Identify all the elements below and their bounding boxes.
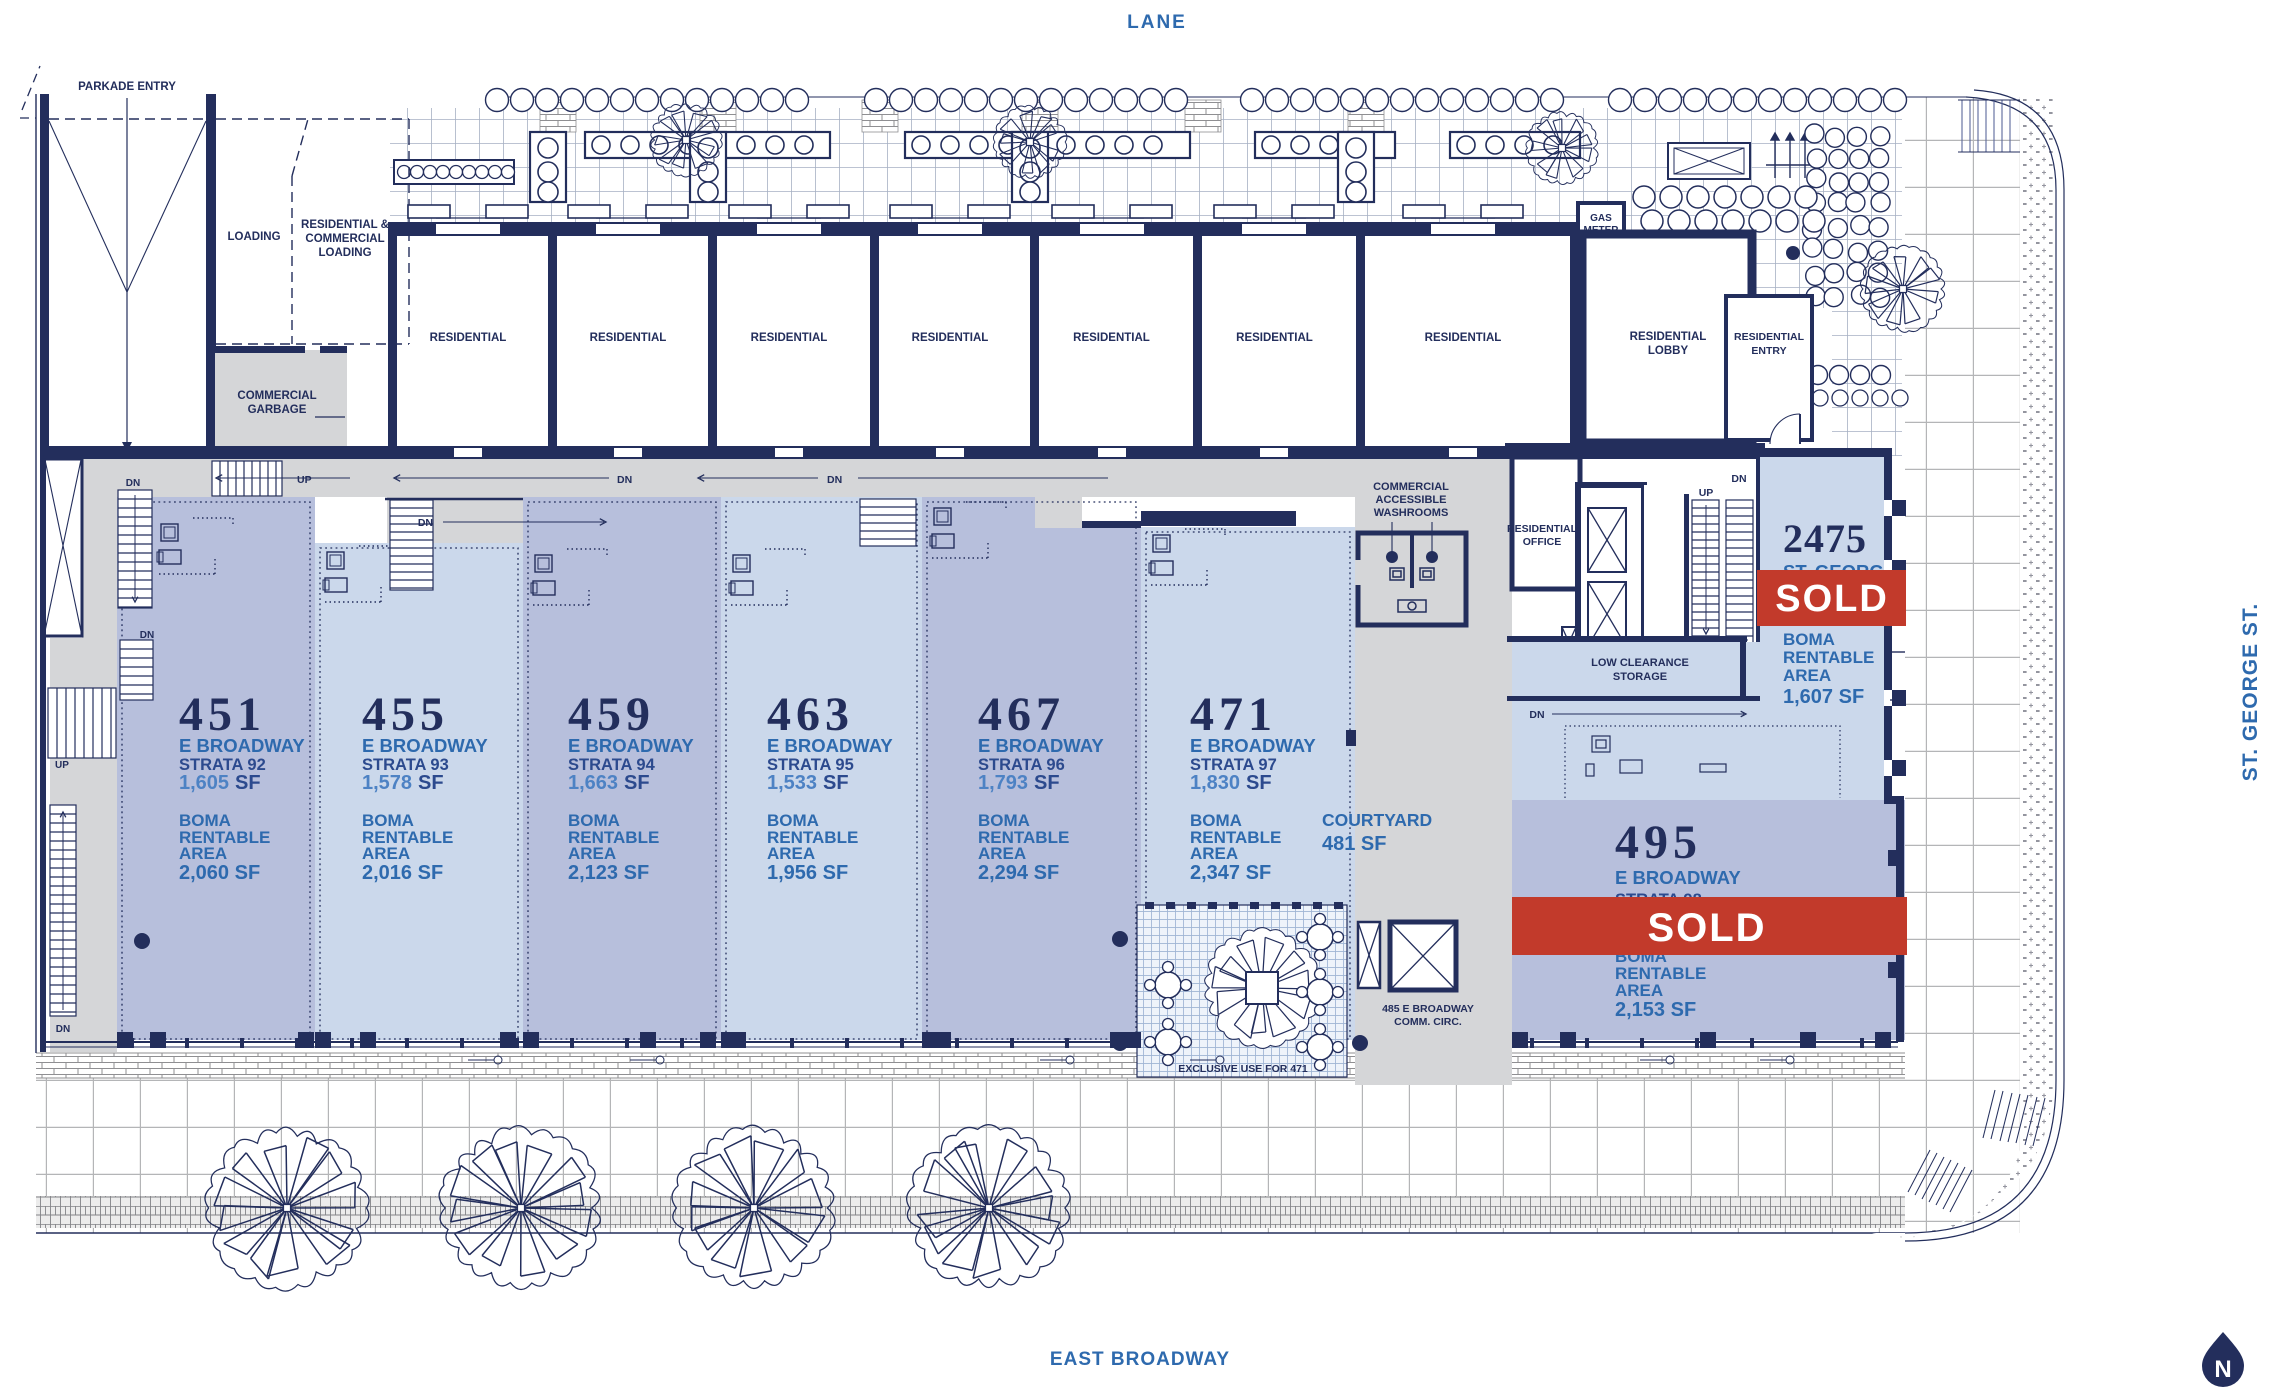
svg-text:LANE: LANE [1127,12,1187,33]
svg-text:DN: DN [56,1024,70,1035]
svg-text:2,153 SF: 2,153 SF [1615,999,1696,1021]
svg-text:E BROADWAY: E BROADWAY [568,735,694,756]
svg-text:OFFICE: OFFICE [1523,536,1562,548]
svg-text:RESIDENTIAL: RESIDENTIAL [1734,331,1805,343]
svg-text:UP: UP [297,474,312,486]
svg-text:E BROADWAY: E BROADWAY [1190,735,1316,756]
svg-text:451: 451 [179,688,266,741]
svg-text:ST. GEORGE ST.: ST. GEORGE ST. [2239,603,2262,782]
svg-text:2475: 2475 [1783,516,1867,561]
svg-text:UP: UP [1699,487,1714,499]
svg-text:ACCESSIBLE: ACCESSIBLE [1376,494,1447,506]
svg-text:1,605: 1,605 [179,772,229,794]
svg-text:RESIDENTIAL: RESIDENTIAL [430,332,507,344]
svg-text:PARKADE ENTRY: PARKADE ENTRY [78,81,176,93]
svg-text:COMMERCIAL: COMMERCIAL [237,390,316,402]
svg-text:GARBAGE: GARBAGE [248,404,307,416]
svg-text:RESIDENTIAL: RESIDENTIAL [1507,523,1578,535]
svg-text:2,016 SF: 2,016 SF [362,862,443,884]
svg-text:AREA: AREA [362,844,410,863]
svg-text:E BROADWAY: E BROADWAY [362,735,488,756]
svg-text:SF: SF [624,772,650,794]
svg-text:GAS: GAS [1590,213,1612,224]
svg-text:BOMA: BOMA [1783,630,1835,649]
svg-text:N: N [2214,1356,2231,1383]
svg-text:COMMERCIAL: COMMERCIAL [1373,481,1449,493]
svg-text:E BROADWAY: E BROADWAY [978,735,1104,756]
svg-text:E BROADWAY: E BROADWAY [179,735,305,756]
svg-text:SF: SF [418,772,444,794]
svg-text:COMMERCIAL: COMMERCIAL [305,233,384,245]
svg-text:DN: DN [418,517,433,529]
svg-text:LOADING: LOADING [227,231,280,243]
svg-text:459: 459 [568,688,655,741]
svg-text:463: 463 [767,688,854,741]
svg-text:EAST BROADWAY: EAST BROADWAY [1050,1349,1230,1370]
svg-text:485 E BROADWAY: 485 E BROADWAY [1382,1003,1474,1015]
svg-text:LOW CLEARANCE: LOW CLEARANCE [1591,657,1689,669]
svg-text:RESIDENTIAL: RESIDENTIAL [1236,332,1313,344]
svg-text:2,123 SF: 2,123 SF [568,862,649,884]
svg-text:DN: DN [1529,709,1544,721]
svg-text:SF: SF [235,772,261,794]
svg-text:E BROADWAY: E BROADWAY [767,735,893,756]
svg-text:UP: UP [55,760,69,771]
svg-text:1,793: 1,793 [978,772,1028,794]
svg-text:RESIDENTIAL: RESIDENTIAL [912,332,989,344]
svg-text:EXCLUSIVE USE FOR 471: EXCLUSIVE USE FOR 471 [1178,1063,1308,1075]
svg-text:RESIDENTIAL: RESIDENTIAL [1630,331,1707,343]
svg-text:SF: SF [1034,772,1060,794]
svg-text:STORAGE: STORAGE [1613,671,1667,683]
svg-text:1,533: 1,533 [767,772,817,794]
svg-text:AREA: AREA [1783,666,1831,685]
svg-text:AREA: AREA [1615,981,1663,1000]
svg-text:AREA: AREA [179,844,227,863]
svg-text:2,347 SF: 2,347 SF [1190,862,1271,884]
svg-text:DN: DN [1731,473,1746,485]
svg-text:DN: DN [617,474,632,486]
svg-text:2,294 SF: 2,294 SF [978,862,1059,884]
svg-text:SOLD: SOLD [1775,578,1889,620]
svg-text:RESIDENTIAL: RESIDENTIAL [751,332,828,344]
svg-text:ENTRY: ENTRY [1751,345,1786,357]
svg-text:1,578: 1,578 [362,772,412,794]
svg-text:AREA: AREA [767,844,815,863]
svg-text:471: 471 [1190,688,1277,741]
svg-text:467: 467 [978,688,1065,741]
svg-text:RESIDENTIAL &: RESIDENTIAL & [301,219,389,231]
svg-text:DN: DN [140,630,154,641]
svg-text:E BROADWAY: E BROADWAY [1615,867,1741,888]
svg-text:COURTYARD: COURTYARD [1322,810,1432,830]
svg-text:495: 495 [1615,816,1702,869]
svg-text:AREA: AREA [568,844,616,863]
svg-text:1,663: 1,663 [568,772,618,794]
svg-text:1,956 SF: 1,956 SF [767,862,848,884]
svg-text:RESIDENTIAL: RESIDENTIAL [590,332,667,344]
svg-text:481 SF: 481 SF [1322,833,1386,855]
svg-text:LOADING: LOADING [318,247,371,259]
svg-text:1,830: 1,830 [1190,772,1240,794]
svg-text:RESIDENTIAL: RESIDENTIAL [1425,332,1502,344]
svg-text:2,060 SF: 2,060 SF [179,862,260,884]
svg-text:DN: DN [827,474,842,486]
svg-text:SOLD: SOLD [1647,906,1766,950]
svg-text:LOBBY: LOBBY [1648,345,1689,357]
svg-text:SF: SF [1246,772,1272,794]
svg-text:455: 455 [362,688,449,741]
svg-text:AREA: AREA [1190,844,1238,863]
svg-text:SF: SF [823,772,849,794]
svg-text:DN: DN [126,478,140,489]
svg-text:1,607 SF: 1,607 SF [1783,686,1864,708]
svg-text:RESIDENTIAL: RESIDENTIAL [1073,332,1150,344]
svg-text:AREA: AREA [978,844,1026,863]
svg-text:RENTABLE: RENTABLE [1783,648,1874,667]
svg-text:WASHROOMS: WASHROOMS [1374,507,1449,519]
svg-text:COMM. CIRC.: COMM. CIRC. [1394,1016,1462,1028]
